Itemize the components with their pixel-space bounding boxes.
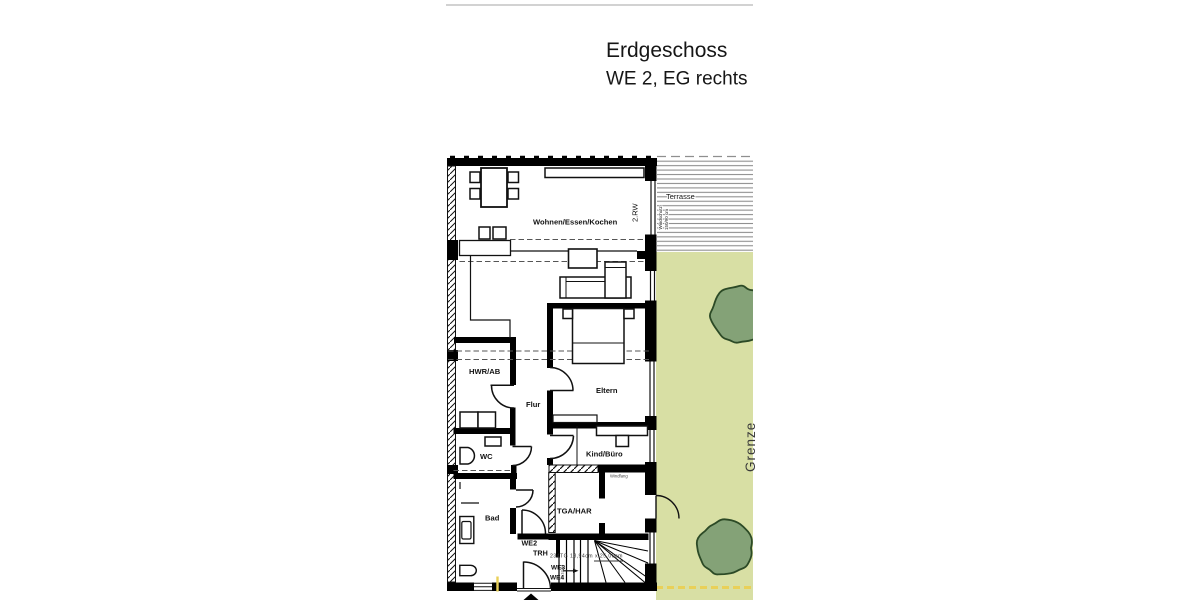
- svg-text:Flur: Flur: [526, 400, 540, 409]
- svg-text:TRH: TRH: [533, 549, 548, 558]
- svg-text:Terrasse: Terrasse: [666, 192, 695, 201]
- svg-text:Bad: Bad: [485, 514, 500, 523]
- svg-text:150/90 cm: 150/90 cm: [664, 209, 669, 230]
- svg-text:HWR/AB: HWR/AB: [469, 367, 501, 376]
- svg-text:Grenze: Grenze: [743, 422, 758, 472]
- svg-text:Erdgeschoss: Erdgeschoss: [606, 39, 727, 62]
- svg-text:Wohnen/Essen/Kochen: Wohnen/Essen/Kochen: [533, 218, 618, 227]
- svg-text:Eltern: Eltern: [596, 386, 618, 395]
- svg-text:2.RW: 2.RW: [631, 202, 640, 222]
- svg-text:Windschutz: Windschutz: [658, 205, 663, 229]
- svg-text:Windfang: Windfang: [610, 474, 628, 479]
- svg-text:234TG 18,94cm x 25,00cm: 234TG 18,94cm x 25,00cm: [550, 554, 623, 560]
- svg-text:WC: WC: [480, 452, 493, 461]
- svg-text:WE 2, EG rechts: WE 2, EG rechts: [606, 69, 747, 90]
- svg-text:WE2: WE2: [522, 539, 538, 548]
- svg-text:Kind/Büro: Kind/Büro: [586, 450, 623, 459]
- svg-text:TGA/HAR: TGA/HAR: [557, 507, 592, 516]
- svg-text:WE4: WE4: [550, 575, 564, 582]
